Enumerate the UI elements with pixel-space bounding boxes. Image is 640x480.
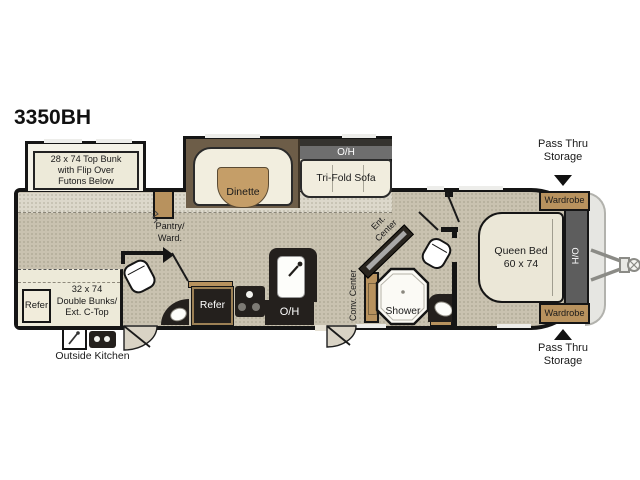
bath-wall bbox=[452, 227, 457, 238]
floorplan-canvas: 3350BH 28 x 74 Top Bunk with Flip Over F… bbox=[0, 0, 640, 480]
arrow-down-icon bbox=[554, 175, 572, 186]
kitchen-sink-counter bbox=[269, 248, 317, 302]
window-mark bbox=[342, 134, 376, 138]
window-mark bbox=[356, 324, 386, 328]
sofa-wall bbox=[300, 139, 392, 146]
door-stub-wall bbox=[445, 190, 453, 197]
kitchen-refrigerator: Refer bbox=[192, 287, 233, 325]
wardrobe-top: Wardrobe bbox=[539, 191, 590, 211]
window-mark bbox=[44, 139, 82, 143]
bunk-divider-line bbox=[18, 282, 120, 283]
trifold-sofa-label: Tri-Fold Sofa bbox=[316, 173, 375, 185]
queen-bed: Queen Bed 60 x 74 bbox=[478, 212, 564, 303]
shower-label: Shower bbox=[378, 306, 428, 318]
front-overhead-label: H/O bbox=[571, 248, 583, 265]
toilet-seat-line bbox=[432, 244, 447, 253]
burner-icon bbox=[238, 303, 246, 311]
pass-thru-bottom-label: Pass Thru Storage bbox=[528, 342, 598, 368]
arrow-up-icon bbox=[554, 329, 572, 340]
top-bunk: 28 x 74 Top Bunk with Flip Over Futons B… bbox=[33, 151, 139, 190]
sink-icon bbox=[168, 305, 188, 323]
conv-center-detail bbox=[368, 283, 377, 315]
top-bunk-label: 28 x 74 Top Bunk with Flip Over Futons B… bbox=[51, 154, 122, 187]
bunk-refrigerator: Refer bbox=[22, 289, 51, 323]
pantry-cabinet bbox=[153, 190, 174, 219]
wardrobe-label: Wardrobe bbox=[545, 308, 585, 320]
kitchen-overhead-cabinet: O/H bbox=[265, 300, 314, 325]
conv-center-cabinet bbox=[364, 272, 379, 323]
burner-icon bbox=[246, 291, 253, 298]
wardrobe-label: Wardrobe bbox=[545, 195, 585, 207]
window-mark bbox=[96, 139, 132, 143]
bunk-bath-wall bbox=[121, 251, 167, 255]
sofa-overhead-label: O/H bbox=[337, 147, 355, 159]
pass-thru-top-label: Pass Thru Storage bbox=[528, 138, 598, 164]
outside-kitchen-label: Outside Kitchen bbox=[40, 351, 145, 363]
burner-icon bbox=[94, 336, 100, 342]
window-mark bbox=[427, 186, 444, 190]
dinette-label: Dinette bbox=[226, 187, 259, 199]
queen-bed-label: Queen Bed 60 x 74 bbox=[494, 245, 547, 271]
hitch-jack-spoke bbox=[630, 261, 638, 269]
window-mark bbox=[459, 186, 503, 190]
model-title: 3350BH bbox=[14, 106, 91, 130]
sink-icon bbox=[277, 256, 305, 298]
outside-burners-icon bbox=[89, 331, 116, 348]
kitchen-refer-label: Refer bbox=[200, 300, 225, 312]
bedroom-wall bbox=[452, 262, 457, 326]
front-overhead-cabinet: H/O bbox=[564, 207, 589, 305]
pantry-label: Pantry/ Ward. bbox=[140, 221, 200, 244]
pillow-line bbox=[552, 219, 553, 296]
outside-sink-icon bbox=[62, 328, 87, 350]
kitchen-overhead-label: O/H bbox=[280, 307, 300, 319]
hitch-coupler bbox=[620, 258, 629, 272]
sofa-overhead-cabinet: O/H bbox=[300, 146, 392, 159]
bunk-refer-label: Refer bbox=[25, 300, 48, 312]
trifold-sofa: Tri-Fold Sofa bbox=[300, 159, 392, 198]
burner-icon bbox=[104, 336, 110, 342]
burner-icon bbox=[252, 303, 260, 311]
conv-center-label: Conv. Center bbox=[348, 266, 362, 324]
hitch-jack-icon bbox=[628, 259, 640, 271]
window-mark bbox=[497, 324, 531, 328]
window-mark bbox=[205, 134, 260, 138]
bunk-bath-wall bbox=[121, 251, 125, 264]
wardrobe-bottom: Wardrobe bbox=[539, 303, 590, 324]
stove-icon bbox=[235, 286, 265, 317]
toilet-seat-line bbox=[128, 265, 145, 275]
double-bunks-label: 32 x 74 Double Bunks/ Ext. C-Top bbox=[50, 284, 124, 319]
hitch-jack-spoke bbox=[630, 261, 638, 269]
